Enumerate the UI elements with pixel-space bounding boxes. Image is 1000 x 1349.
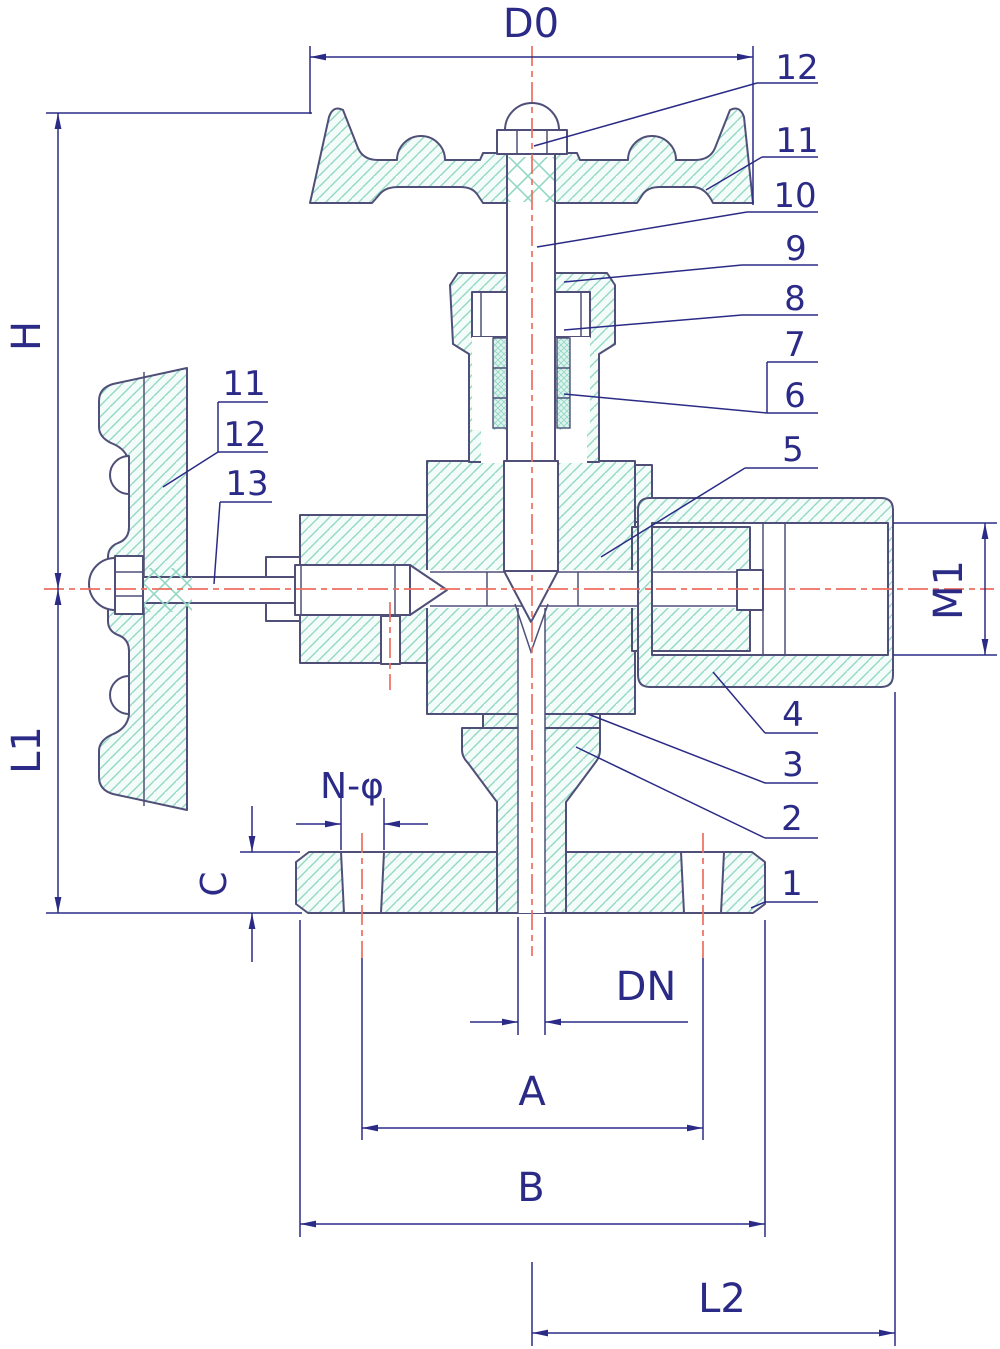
packing-right xyxy=(557,338,570,428)
dim-C: C xyxy=(194,806,300,962)
part-label-1: 1 xyxy=(781,864,803,904)
side-cap-dome xyxy=(89,558,115,610)
dim-H-label: H xyxy=(4,321,50,351)
part-label-4: 4 xyxy=(782,695,804,735)
spoke-section-bottom xyxy=(110,676,129,714)
part-label-7: 7 xyxy=(784,325,806,365)
part-label-6: 6 xyxy=(784,376,806,416)
part-label-12: 12 xyxy=(775,48,818,88)
top-stem xyxy=(504,154,558,652)
valve-technical-drawing-page: D0 H L1 M1 C N-φ DN xyxy=(0,0,1000,1349)
dim-A-label: A xyxy=(518,1069,546,1115)
part-label-5: 5 xyxy=(782,430,804,470)
dim-DN-label: DN xyxy=(616,964,677,1010)
part-label-8: 8 xyxy=(784,279,806,319)
dim-L1-label: L1 xyxy=(4,726,50,774)
tailpiece-end xyxy=(737,570,763,610)
dim-M1-label: M1 xyxy=(926,560,972,620)
part-label-left-13: 13 xyxy=(225,464,268,504)
needle-plug xyxy=(504,461,558,571)
dim-B-label: B xyxy=(517,1165,544,1211)
valve-technical-drawing: D0 H L1 M1 C N-φ DN xyxy=(0,0,1000,1349)
part-label-2: 2 xyxy=(781,799,803,839)
packing-left xyxy=(493,338,507,428)
part-label-9: 9 xyxy=(785,229,807,269)
dim-L2: L2 xyxy=(532,692,895,1346)
part-label-11: 11 xyxy=(775,121,818,161)
dim-L2-label: L2 xyxy=(698,1276,746,1322)
dim-C-label: C xyxy=(194,871,235,896)
part-label-3: 3 xyxy=(782,745,804,785)
dim-DN: DN xyxy=(470,917,688,1035)
part-label-left-11: 11 xyxy=(222,364,265,404)
spoke-section-top xyxy=(110,456,129,494)
side-cap-nut-hex xyxy=(115,556,143,614)
part-label-left-12: 12 xyxy=(223,415,266,455)
dim-D0-label: D0 xyxy=(503,1,559,47)
part-label-10: 10 xyxy=(773,176,816,216)
dim-N-phi-label: N-φ xyxy=(320,766,384,807)
